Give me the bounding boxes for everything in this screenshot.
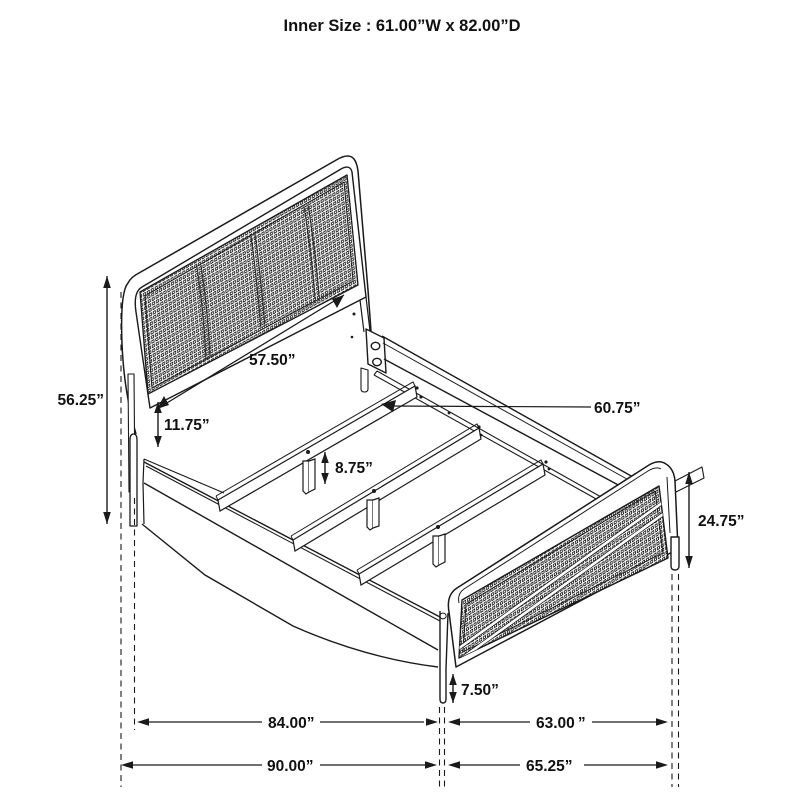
svg-text:60.75”: 60.75” <box>594 400 641 417</box>
svg-text:65.25”: 65.25” <box>526 758 573 775</box>
svg-text:11.75”: 11.75” <box>164 417 210 434</box>
svg-text:90.00”: 90.00” <box>267 758 314 775</box>
svg-text:84.00”: 84.00” <box>268 715 315 732</box>
svg-text:8.75”: 8.75” <box>335 460 373 477</box>
svg-text:63.00 ”: 63.00 ” <box>536 715 586 732</box>
svg-text:56.25”: 56.25” <box>57 392 104 409</box>
svg-text:24.75”: 24.75” <box>698 513 745 530</box>
svg-text:57.50”: 57.50” <box>249 352 296 369</box>
svg-text:7.50”: 7.50” <box>461 682 499 699</box>
svg-text:Inner Size : 61.00”W x 82.00”D: Inner Size : 61.00”W x 82.00”D <box>284 16 521 35</box>
